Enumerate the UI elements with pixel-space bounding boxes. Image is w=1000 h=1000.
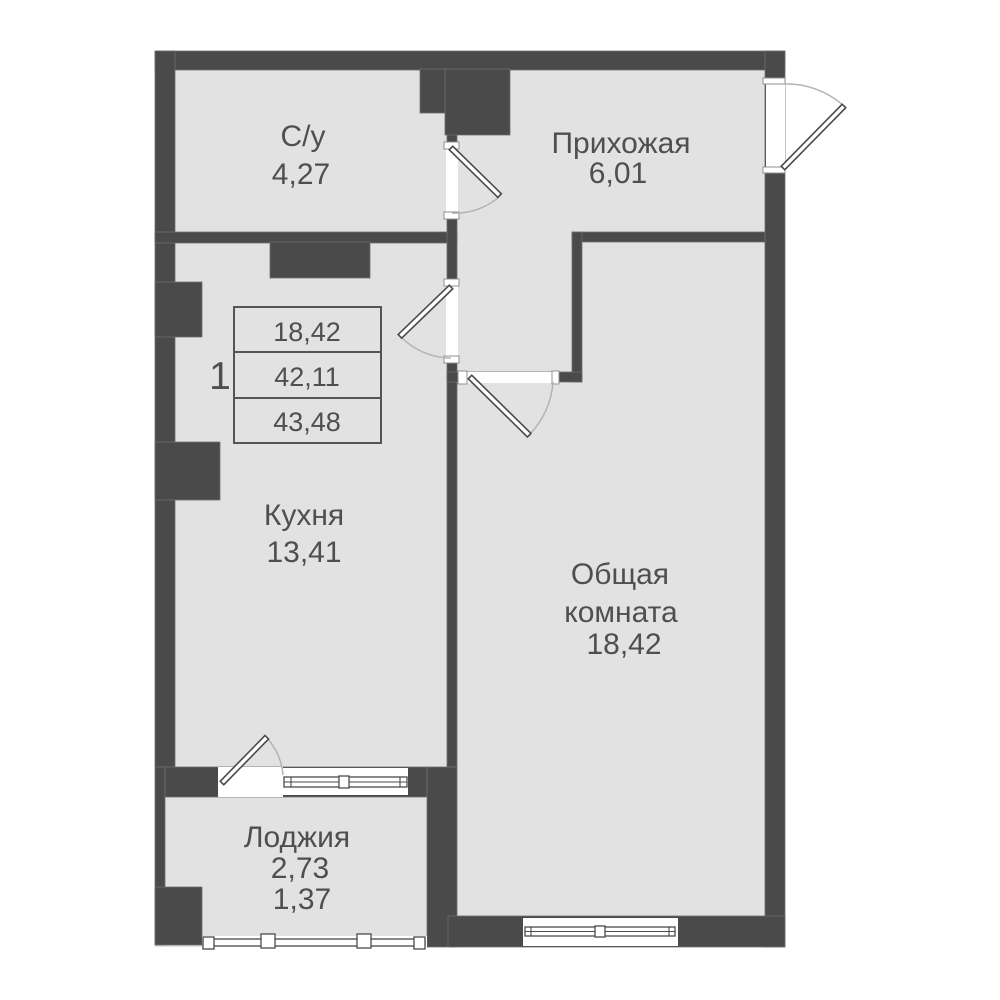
wall-hall-living-vertical <box>572 232 582 382</box>
wall-bathroom-notch <box>420 69 447 113</box>
hallway-name: Прихожая <box>551 127 690 160</box>
floor-plan-svg: 18,42 42,11 43,48 1 С/у 4,27 Прихожая 6,… <box>0 0 1000 1000</box>
wall-left-upper <box>155 51 175 767</box>
wall-hall-living-horizontal <box>572 232 765 242</box>
wall-top <box>155 51 785 70</box>
loggia-glazing-post-1 <box>203 937 214 949</box>
kitchen-door-jamb-bottom <box>444 356 459 363</box>
floor-plan-page: 18,42 42,11 43,48 1 С/у 4,27 Прихожая 6,… <box>0 0 1000 1000</box>
hallway-area: 6,01 <box>589 157 647 190</box>
living-door-jamb-left <box>458 371 467 384</box>
kitchen-area: 13,41 <box>266 536 341 569</box>
bathroom-area: 4,27 <box>272 158 330 191</box>
apartment-info-table: 18,42 42,11 43,48 1 <box>209 307 381 443</box>
entry-door-leaf <box>781 104 846 170</box>
loggia-name: Лоджия <box>244 821 350 854</box>
info-table-row-area: 42,11 <box>274 362 340 392</box>
info-table-row-living-area: 18,42 <box>273 317 341 347</box>
entry-door-opening <box>766 84 785 168</box>
kitchen-door-opening <box>446 286 458 356</box>
living-room-area: 18,42 <box>586 628 661 661</box>
living-door-opening <box>467 372 552 383</box>
building-footprint <box>155 51 785 947</box>
living-room-name-line1: Общая <box>571 558 669 591</box>
loggia-glazing-post-2 <box>261 934 275 948</box>
loggia-glazing-post-4 <box>414 937 425 949</box>
bathroom-name: С/у <box>281 120 326 153</box>
loggia-area-reduced: 1,37 <box>273 883 331 916</box>
wall-bathroom-bottom <box>155 232 457 243</box>
loggia-area: 2,73 <box>271 852 329 885</box>
wall-vent-shaft <box>270 242 370 278</box>
wall-left-pier-lower <box>155 442 220 500</box>
living-window-mullion <box>595 926 605 937</box>
loggia-glazing-band <box>203 939 425 946</box>
kitchen-door-jamb-top <box>444 279 459 286</box>
balcony-door-opening <box>218 767 283 797</box>
loggia-glazing-post-3 <box>357 934 371 948</box>
info-table-row-total-area: 43,48 <box>273 407 341 437</box>
entry-door-arc <box>783 84 844 106</box>
entry-door-jamb-bottom <box>763 167 785 173</box>
kitchen-window-mullion <box>339 776 349 788</box>
wall-left-pier-upper <box>155 282 202 337</box>
bathroom-door-opening <box>446 149 458 212</box>
apartment-number: 1 <box>209 355 231 398</box>
entry-door-jamb-top <box>763 78 785 84</box>
wall-loggia-notch <box>155 887 202 945</box>
wall-hallway-block <box>445 69 510 135</box>
living-room-name-line2: комната <box>564 596 678 629</box>
kitchen-name: Кухня <box>264 499 344 532</box>
kitchen-window <box>284 776 407 788</box>
living-window <box>525 926 675 937</box>
wall-right <box>765 51 785 947</box>
